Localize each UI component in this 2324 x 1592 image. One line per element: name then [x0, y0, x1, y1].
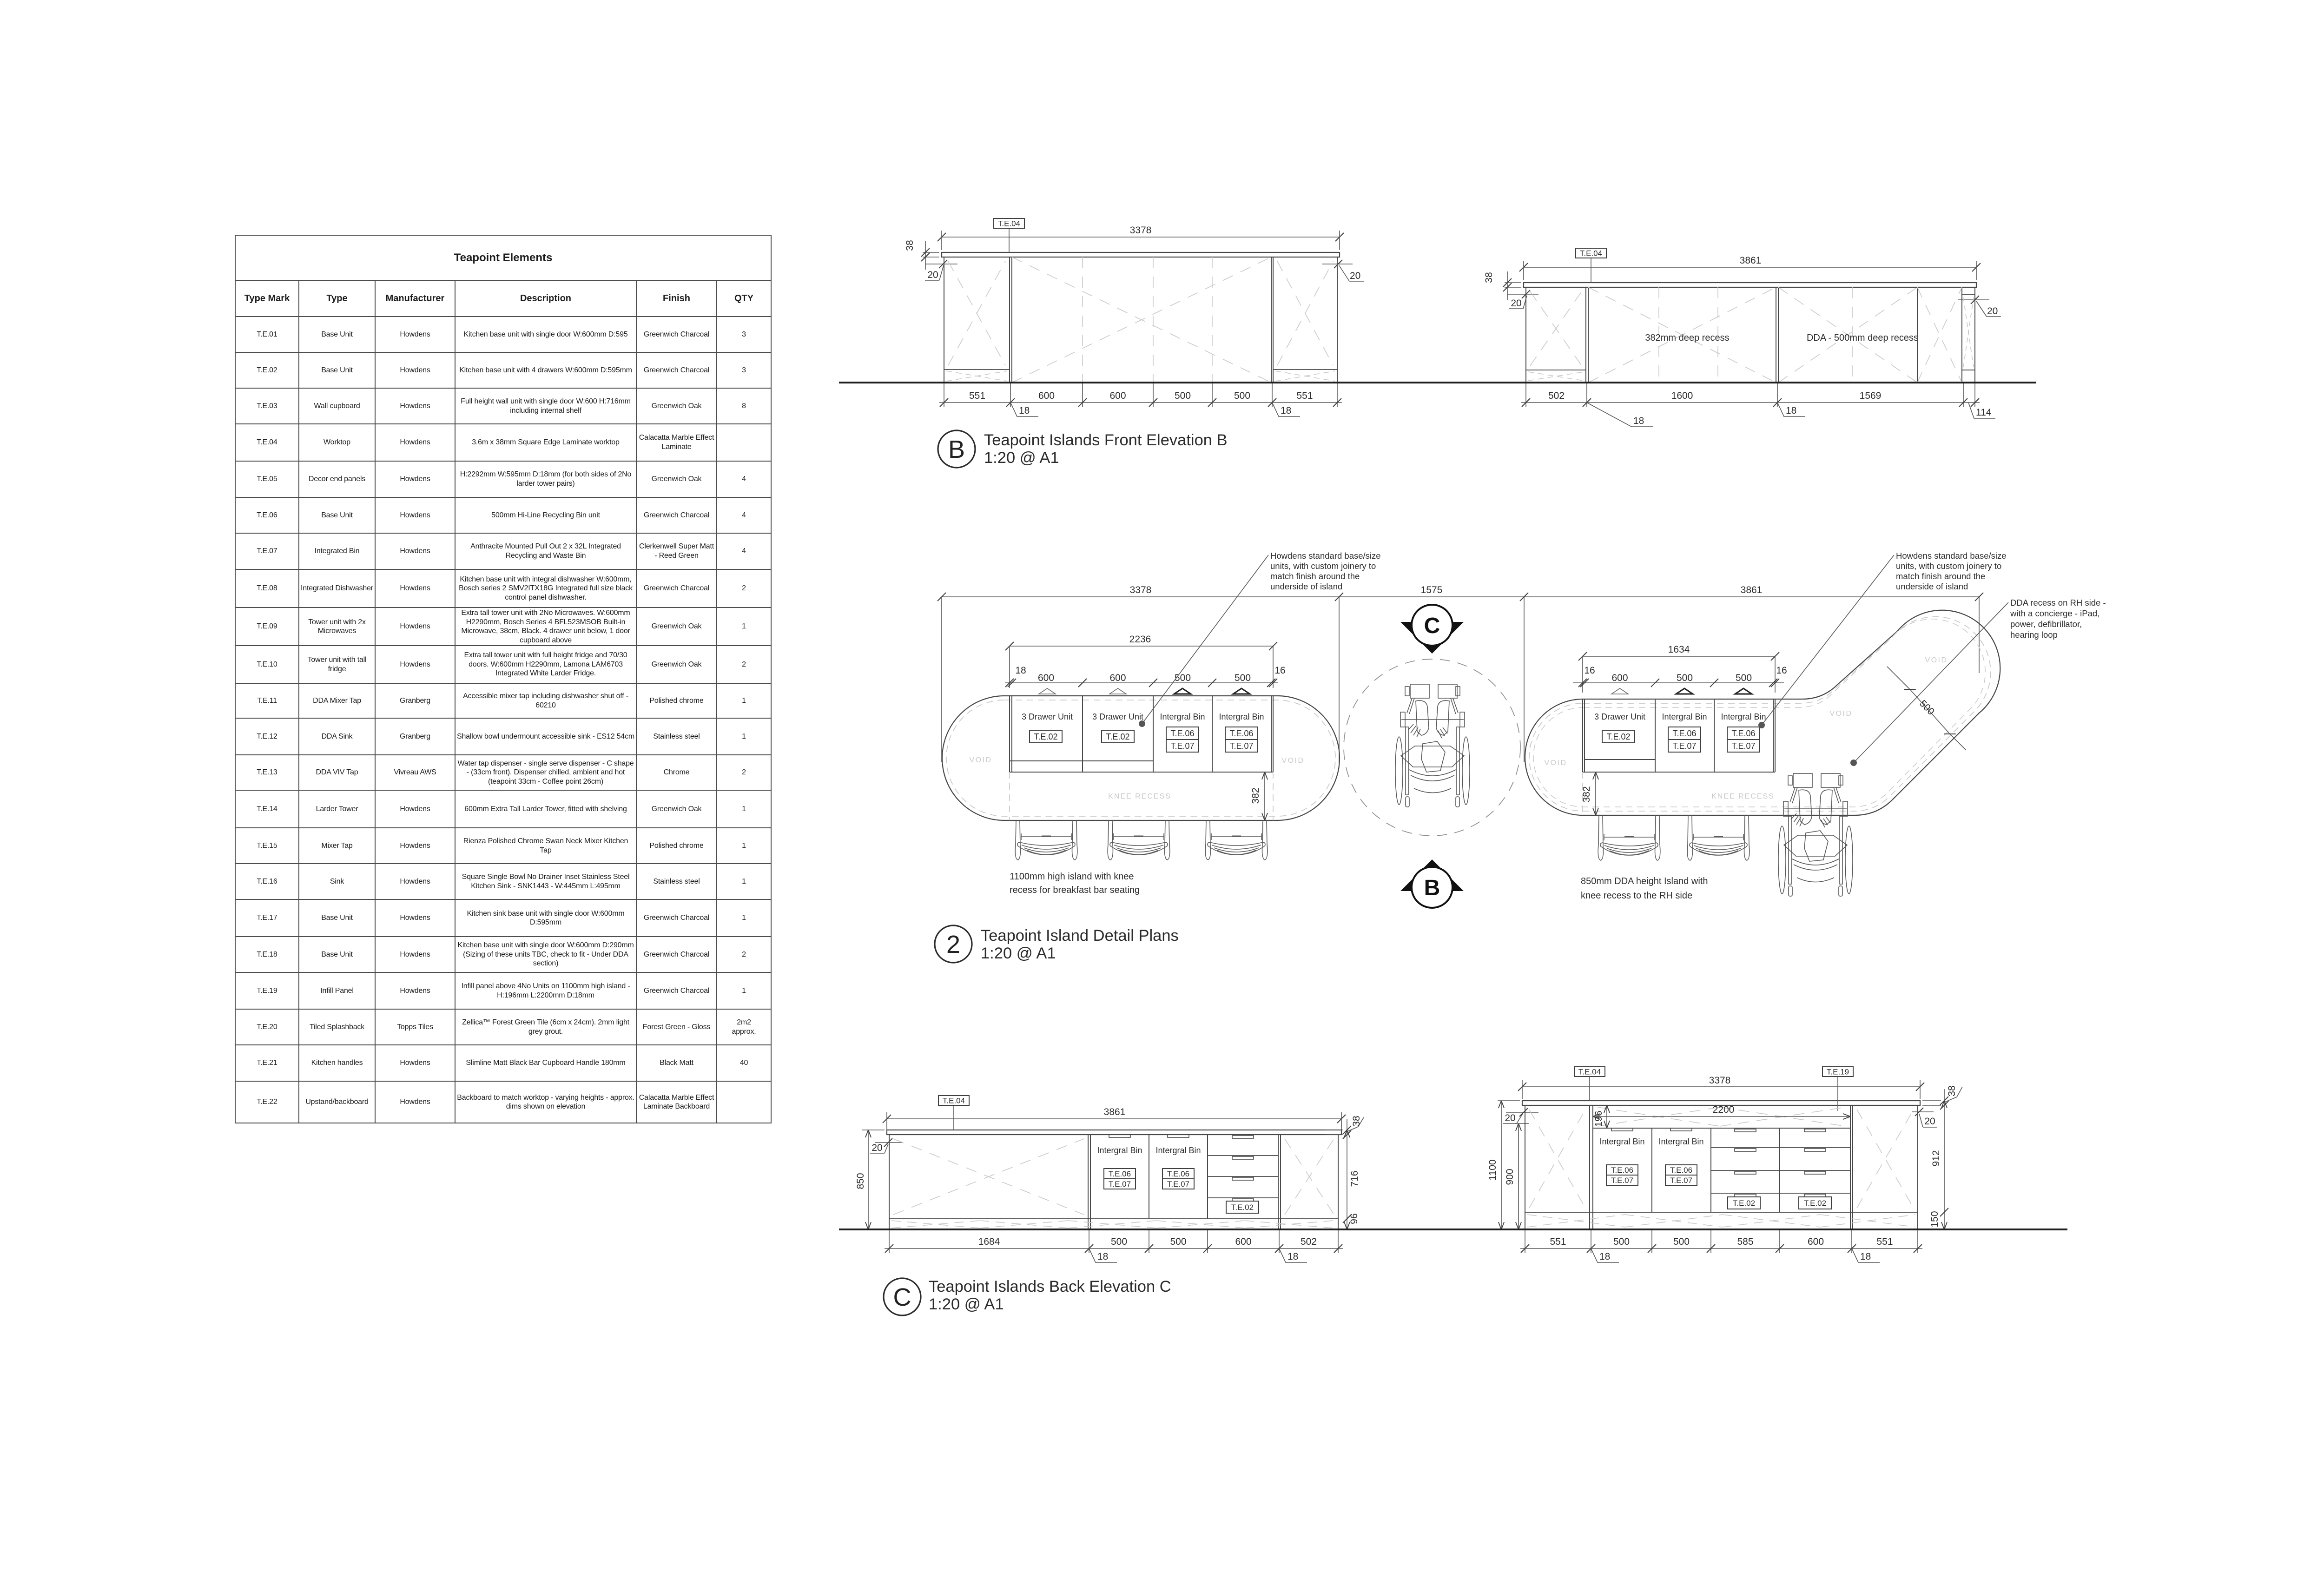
svg-text:500: 500 — [1677, 673, 1693, 683]
svg-text:T.E.04: T.E.04 — [1578, 1068, 1601, 1077]
svg-text:Intergral Bin: Intergral Bin — [1097, 1146, 1142, 1155]
svg-text:power, defibrillator,: power, defibrillator, — [2010, 619, 2082, 629]
svg-text:DDA recess on RH side -: DDA recess on RH side - — [2010, 598, 2106, 608]
svg-text:500: 500 — [1234, 390, 1250, 401]
svg-text:T.E.02: T.E.02 — [1034, 732, 1057, 741]
svg-text:1634: 1634 — [1668, 644, 1690, 655]
svg-text:Intergral Bin: Intergral Bin — [1658, 1137, 1703, 1146]
svg-text:18: 18 — [1097, 1251, 1108, 1262]
svg-text:knee recess to the RH side: knee recess to the RH side — [1581, 891, 1692, 901]
svg-text:Intergral Bin: Intergral Bin — [1160, 712, 1205, 721]
svg-text:850: 850 — [855, 1173, 866, 1189]
svg-text:20: 20 — [871, 1143, 882, 1153]
svg-text:VOID: VOID — [969, 756, 992, 764]
svg-text:20: 20 — [1987, 306, 1998, 317]
svg-text:T.E.06: T.E.06 — [1670, 1166, 1692, 1175]
svg-text:20: 20 — [1505, 1113, 1515, 1123]
svg-text:T.E.06: T.E.06 — [1672, 729, 1696, 738]
svg-text:1684: 1684 — [978, 1236, 1000, 1247]
svg-text:500: 500 — [1613, 1236, 1630, 1247]
svg-text:VOID: VOID — [1925, 656, 1948, 664]
svg-text:1100mm high island with knee: 1100mm high island with knee — [1010, 872, 1134, 882]
svg-text:Howdens standard base/size: Howdens standard base/size — [1270, 551, 1381, 561]
svg-text:38: 38 — [1484, 272, 1494, 283]
svg-text:C: C — [893, 1283, 911, 1311]
svg-text:1100: 1100 — [1487, 1159, 1498, 1180]
svg-text:850mm DDA height Island with: 850mm DDA height Island with — [1581, 876, 1708, 886]
svg-text:T.E.04: T.E.04 — [943, 1097, 965, 1105]
svg-text:B: B — [948, 436, 965, 463]
svg-text:T.E.07: T.E.07 — [1170, 741, 1194, 751]
svg-text:551: 551 — [1876, 1236, 1893, 1247]
svg-text:500: 500 — [1111, 1236, 1127, 1247]
svg-text:underside of island: underside of island — [1270, 581, 1342, 591]
svg-text:551: 551 — [1550, 1236, 1566, 1247]
svg-text:196: 196 — [1593, 1110, 1604, 1127]
svg-text:Intergral Bin: Intergral Bin — [1155, 1146, 1201, 1155]
svg-text:585: 585 — [1737, 1236, 1753, 1247]
svg-text:recess for breakfast bar seati: recess for breakfast bar seating — [1010, 885, 1140, 895]
svg-text:38: 38 — [1947, 1085, 1957, 1096]
svg-text:T.E.19: T.E.19 — [1827, 1068, 1849, 1077]
svg-text:Intergral Bin: Intergral Bin — [1662, 712, 1707, 721]
svg-text:20: 20 — [1924, 1116, 1935, 1127]
svg-text:T.E.07: T.E.07 — [1611, 1176, 1633, 1185]
svg-text:18: 18 — [1786, 405, 1796, 416]
svg-text:18: 18 — [1633, 416, 1644, 426]
svg-text:T.E.02: T.E.02 — [1106, 732, 1129, 741]
svg-text:KNEE RECESS: KNEE RECESS — [1108, 793, 1171, 800]
svg-text:20: 20 — [1511, 298, 1521, 309]
svg-text:T.E.07: T.E.07 — [1167, 1180, 1189, 1189]
svg-text:912: 912 — [1931, 1150, 1941, 1166]
svg-text:hearing loop: hearing loop — [2010, 630, 2058, 640]
svg-text:1569: 1569 — [1860, 390, 1882, 401]
svg-text:1:20 @ A1: 1:20 @ A1 — [929, 1295, 1004, 1313]
svg-text:with a concierge - iPad,: with a concierge - iPad, — [2010, 608, 2100, 618]
svg-text:match finish around the: match finish around the — [1896, 571, 1985, 581]
svg-text:500: 500 — [1175, 390, 1191, 401]
svg-text:551: 551 — [1296, 390, 1313, 401]
svg-text:T.E.02: T.E.02 — [1804, 1199, 1826, 1208]
svg-text:Intergral Bin: Intergral Bin — [1219, 712, 1264, 721]
svg-text:18: 18 — [1860, 1251, 1871, 1262]
svg-text:B: B — [1424, 876, 1440, 900]
svg-text:3861: 3861 — [1741, 585, 1763, 595]
svg-text:96: 96 — [1349, 1213, 1360, 1224]
svg-text:16: 16 — [1274, 665, 1285, 676]
svg-text:T.E.07: T.E.07 — [1109, 1180, 1131, 1189]
svg-text:18: 18 — [1287, 1251, 1298, 1262]
svg-text:T.E.06: T.E.06 — [1731, 729, 1755, 738]
svg-text:T.E.06: T.E.06 — [1229, 729, 1253, 738]
svg-text:18: 18 — [1281, 405, 1291, 416]
svg-text:T.E.07: T.E.07 — [1672, 741, 1696, 751]
svg-text:3861: 3861 — [1740, 255, 1762, 266]
svg-text:114: 114 — [1976, 407, 1992, 418]
svg-text:500: 500 — [1175, 673, 1191, 683]
svg-text:VOID: VOID — [1281, 757, 1304, 765]
svg-text:underside of island: underside of island — [1896, 581, 1968, 591]
svg-text:500: 500 — [1736, 673, 1752, 683]
svg-text:VOID: VOID — [1544, 759, 1567, 767]
svg-text:38: 38 — [1351, 1116, 1362, 1126]
svg-text:18: 18 — [1019, 405, 1030, 416]
svg-text:3378: 3378 — [1709, 1075, 1731, 1086]
svg-text:Teapoint Islands Back Elevatio: Teapoint Islands Back Elevation C — [929, 1278, 1171, 1295]
svg-text:T.E.06: T.E.06 — [1611, 1166, 1633, 1175]
svg-text:T.E.04: T.E.04 — [998, 219, 1020, 228]
svg-text:551: 551 — [969, 390, 985, 401]
svg-text:C: C — [1424, 614, 1440, 638]
svg-text:match finish around the: match finish around the — [1270, 571, 1360, 581]
svg-text:150: 150 — [1929, 1211, 1940, 1227]
svg-text:DDA - 500mm deep recess: DDA - 500mm deep recess — [1807, 333, 1918, 343]
svg-text:502: 502 — [1548, 390, 1565, 401]
svg-text:T.E.07: T.E.07 — [1731, 741, 1755, 751]
svg-text:T.E.06: T.E.06 — [1167, 1169, 1189, 1178]
svg-text:20: 20 — [1350, 271, 1360, 281]
svg-text:Howdens standard base/size: Howdens standard base/size — [1896, 551, 2007, 561]
svg-text:2: 2 — [946, 931, 960, 958]
svg-text:18: 18 — [1599, 1251, 1610, 1262]
svg-text:600: 600 — [1109, 390, 1126, 401]
svg-text:units, with custom joinery to: units, with custom joinery to — [1896, 561, 2001, 571]
svg-text:16: 16 — [1584, 665, 1595, 676]
svg-text:600: 600 — [1038, 673, 1054, 683]
svg-text:units, with custom joinery to: units, with custom joinery to — [1270, 561, 1376, 571]
svg-text:2236: 2236 — [1129, 634, 1151, 645]
svg-text:38: 38 — [905, 240, 915, 251]
svg-text:500: 500 — [1170, 1236, 1186, 1247]
svg-text:T.E.02: T.E.02 — [1606, 732, 1630, 741]
svg-text:1600: 1600 — [1671, 390, 1693, 401]
svg-text:Intergral Bin: Intergral Bin — [1599, 1137, 1644, 1146]
svg-text:382: 382 — [1581, 786, 1592, 802]
svg-text:600: 600 — [1808, 1236, 1824, 1247]
svg-text:3861: 3861 — [1104, 1107, 1126, 1117]
svg-text:382: 382 — [1250, 787, 1261, 804]
svg-text:502: 502 — [1301, 1236, 1317, 1247]
svg-text:16: 16 — [1776, 665, 1787, 676]
svg-text:500: 500 — [1673, 1236, 1690, 1247]
svg-text:T.E.06: T.E.06 — [1170, 729, 1194, 738]
svg-text:18: 18 — [1015, 665, 1026, 676]
svg-text:Intergral Bin: Intergral Bin — [1721, 712, 1766, 721]
svg-text:20: 20 — [927, 270, 938, 280]
svg-text:716: 716 — [1349, 1170, 1360, 1187]
svg-text:Teapoint Island Detail Plans: Teapoint Island Detail Plans — [981, 927, 1179, 945]
svg-text:3378: 3378 — [1130, 585, 1152, 595]
svg-text:382mm deep recess: 382mm deep recess — [1645, 333, 1729, 343]
svg-text:KNEE RECESS: KNEE RECESS — [1711, 793, 1775, 800]
svg-text:3 Drawer Unit: 3 Drawer Unit — [1594, 712, 1645, 721]
svg-text:VOID: VOID — [1829, 710, 1852, 718]
svg-text:T.E.07: T.E.07 — [1670, 1176, 1692, 1185]
svg-text:500: 500 — [1235, 673, 1251, 683]
svg-text:3 Drawer Unit: 3 Drawer Unit — [1092, 712, 1143, 721]
svg-text:3378: 3378 — [1130, 225, 1152, 236]
svg-text:T.E.02: T.E.02 — [1231, 1203, 1254, 1212]
svg-text:900: 900 — [1505, 1169, 1515, 1185]
svg-text:600: 600 — [1235, 1236, 1251, 1247]
svg-text:600: 600 — [1109, 673, 1126, 683]
svg-text:Teapoint Islands Front Elevati: Teapoint Islands Front Elevation B — [984, 431, 1228, 449]
svg-text:1:20 @ A1: 1:20 @ A1 — [984, 449, 1059, 467]
svg-text:T.E.07: T.E.07 — [1229, 741, 1253, 751]
svg-text:1575: 1575 — [1421, 585, 1443, 595]
svg-text:T.E.04: T.E.04 — [1580, 249, 1602, 258]
svg-text:T.E.06: T.E.06 — [1109, 1169, 1131, 1178]
svg-text:2200: 2200 — [1713, 1104, 1735, 1115]
svg-text:T.E.02: T.E.02 — [1733, 1199, 1755, 1208]
svg-text:600: 600 — [1611, 673, 1628, 683]
svg-text:600: 600 — [1038, 390, 1055, 401]
svg-text:1:20 @ A1: 1:20 @ A1 — [981, 945, 1056, 962]
svg-text:3 Drawer Unit: 3 Drawer Unit — [1022, 712, 1073, 721]
